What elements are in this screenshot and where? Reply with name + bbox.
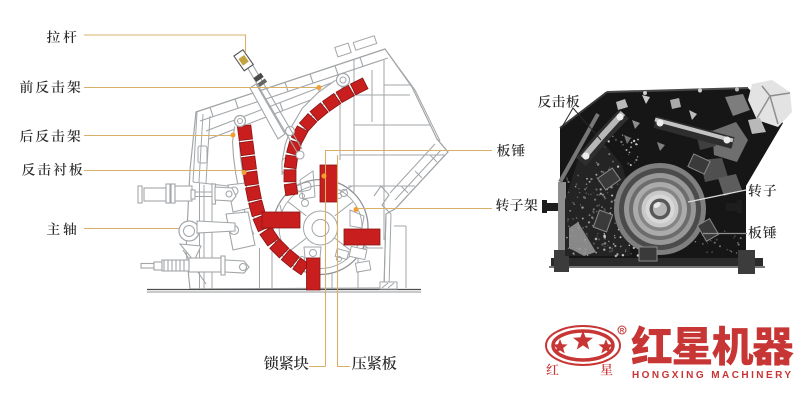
svg-text:HONGXING MACHINERY: HONGXING MACHINERY <box>632 370 794 381</box>
svg-text:R: R <box>620 329 625 335</box>
